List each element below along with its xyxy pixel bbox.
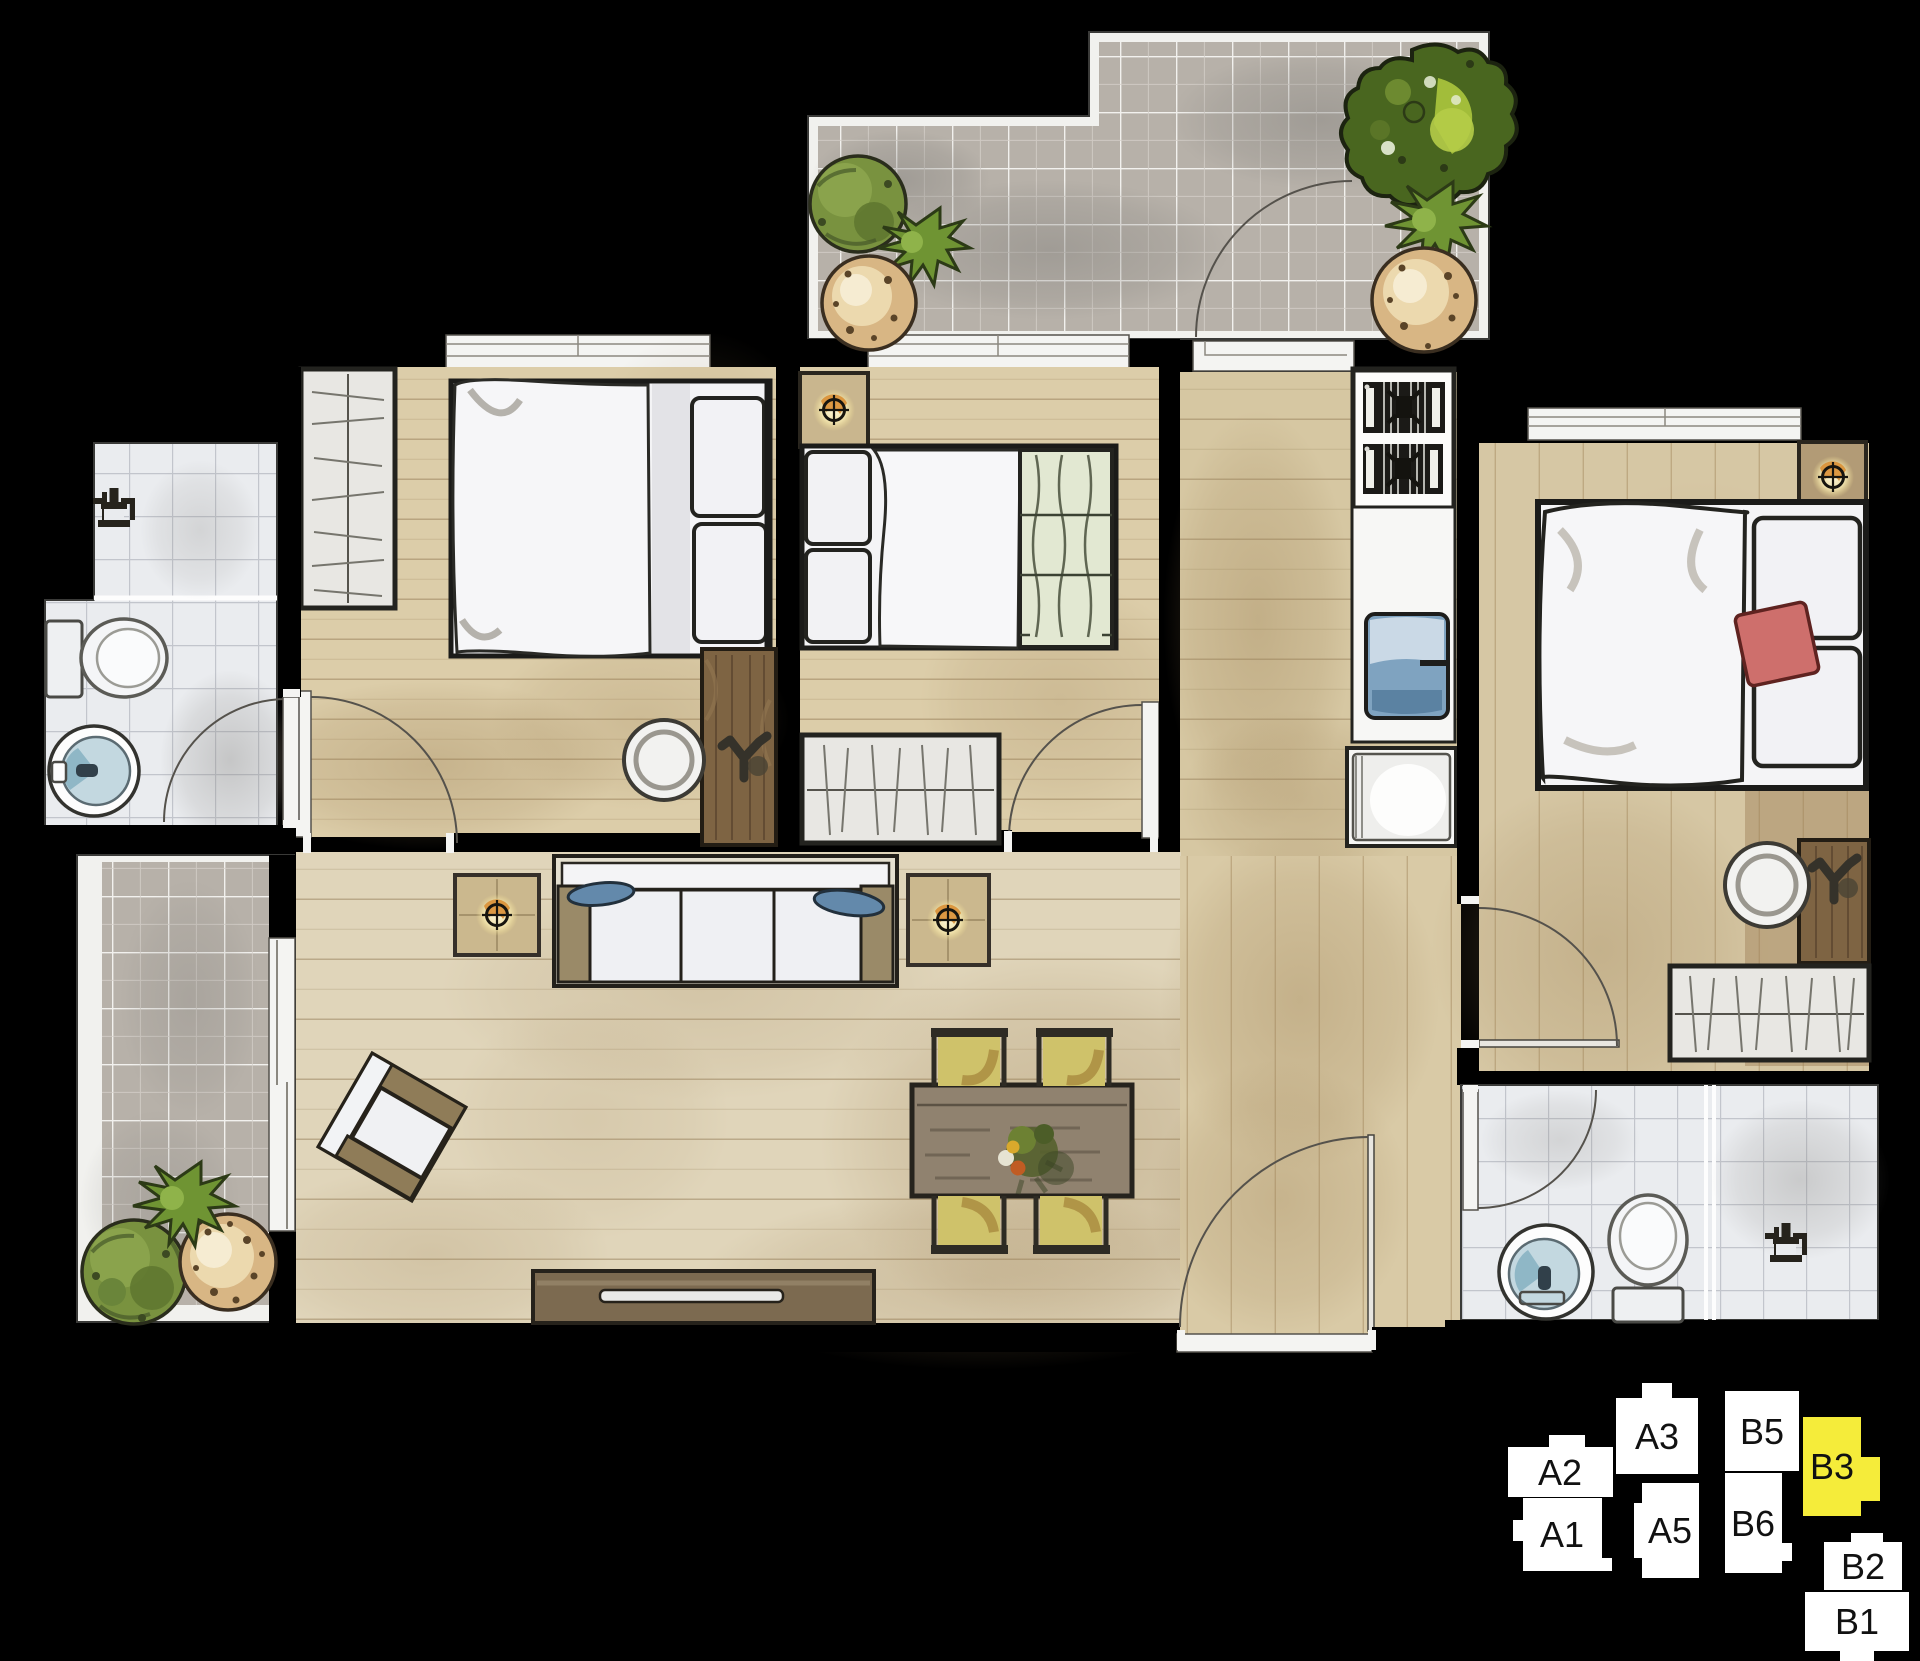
svg-text:A5: A5 [1648,1510,1692,1551]
svg-text:B5: B5 [1740,1411,1784,1452]
svg-text:A2: A2 [1538,1452,1582,1493]
svg-text:B3: B3 [1810,1446,1854,1487]
svg-text:A1: A1 [1540,1514,1584,1555]
svg-text:B2: B2 [1841,1546,1885,1587]
svg-text:A3: A3 [1635,1416,1679,1457]
svg-text:B1: B1 [1835,1601,1879,1642]
svg-text:B6: B6 [1731,1503,1775,1544]
